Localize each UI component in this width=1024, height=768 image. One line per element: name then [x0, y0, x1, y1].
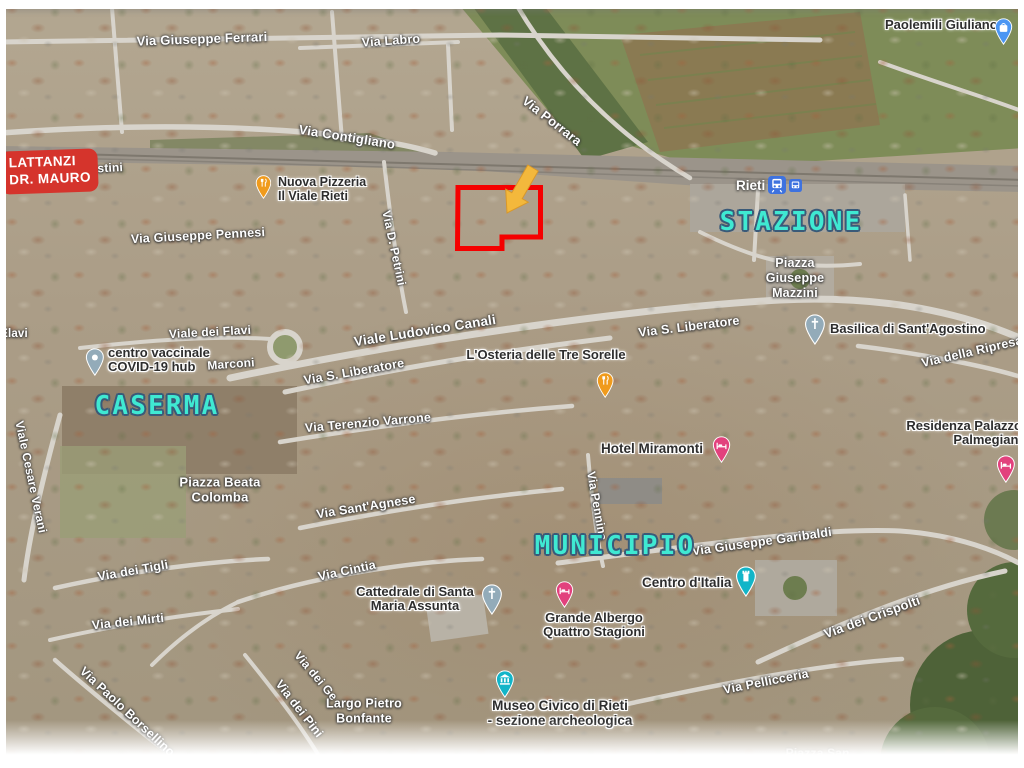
satellite-map[interactable]: Via Giuseppe FerrariVia LabroVia Porrara…	[0, 0, 1024, 768]
frame-left	[0, 0, 6, 768]
frame-top	[0, 0, 1024, 9]
frame-bottom-fade	[0, 720, 1024, 768]
area-label: STAZIONE	[720, 207, 863, 237]
map-viewport: Via Giuseppe FerrariVia LabroVia Porrara…	[0, 0, 1024, 768]
area-labels-layer: STAZIONECASERMAMUNICIPIO	[0, 0, 1024, 768]
area-label: CASERMA	[95, 391, 220, 421]
frame-right	[1018, 0, 1024, 768]
area-label: MUNICIPIO	[535, 531, 696, 561]
